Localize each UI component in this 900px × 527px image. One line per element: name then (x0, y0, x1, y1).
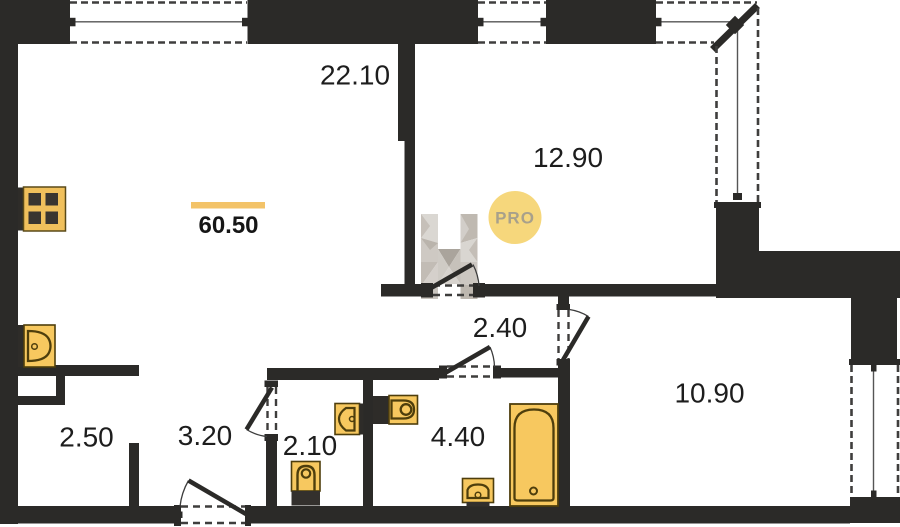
svg-text:2.10: 2.10 (283, 430, 338, 461)
svg-text:10.90: 10.90 (674, 378, 744, 409)
svg-text:3.20: 3.20 (178, 420, 233, 451)
svg-text:2.40: 2.40 (473, 312, 528, 343)
svg-text:PRO: PRO (495, 209, 535, 228)
svg-text:12.90: 12.90 (533, 142, 603, 173)
svg-text:2.50: 2.50 (59, 422, 114, 453)
svg-text:4.40: 4.40 (431, 421, 486, 452)
svg-text:60.50: 60.50 (198, 212, 258, 239)
svg-text:22.10: 22.10 (320, 60, 390, 91)
